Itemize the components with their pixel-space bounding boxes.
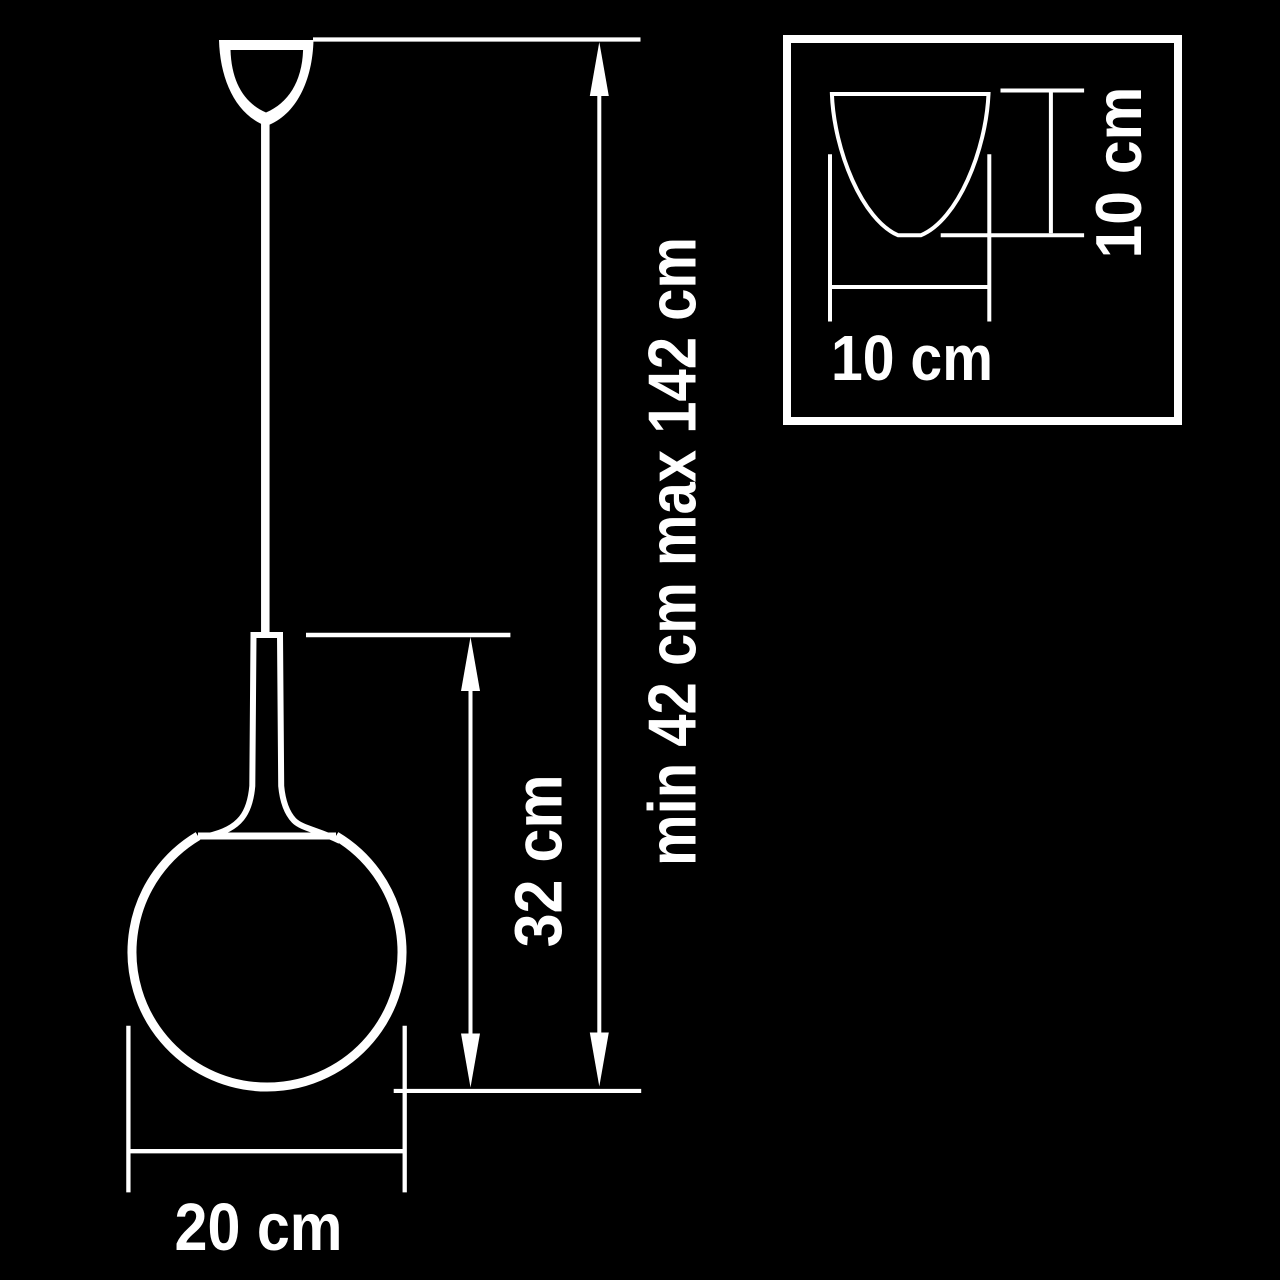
svg-text:10 cm: 10 cm xyxy=(1082,87,1155,259)
svg-text:10 cm: 10 cm xyxy=(831,322,993,394)
svg-text:20 cm: 20 cm xyxy=(175,1190,343,1265)
svg-text:min 42 cm max 142 cm: min 42 cm max 142 cm xyxy=(635,237,711,866)
svg-text:32 cm: 32 cm xyxy=(501,774,576,947)
